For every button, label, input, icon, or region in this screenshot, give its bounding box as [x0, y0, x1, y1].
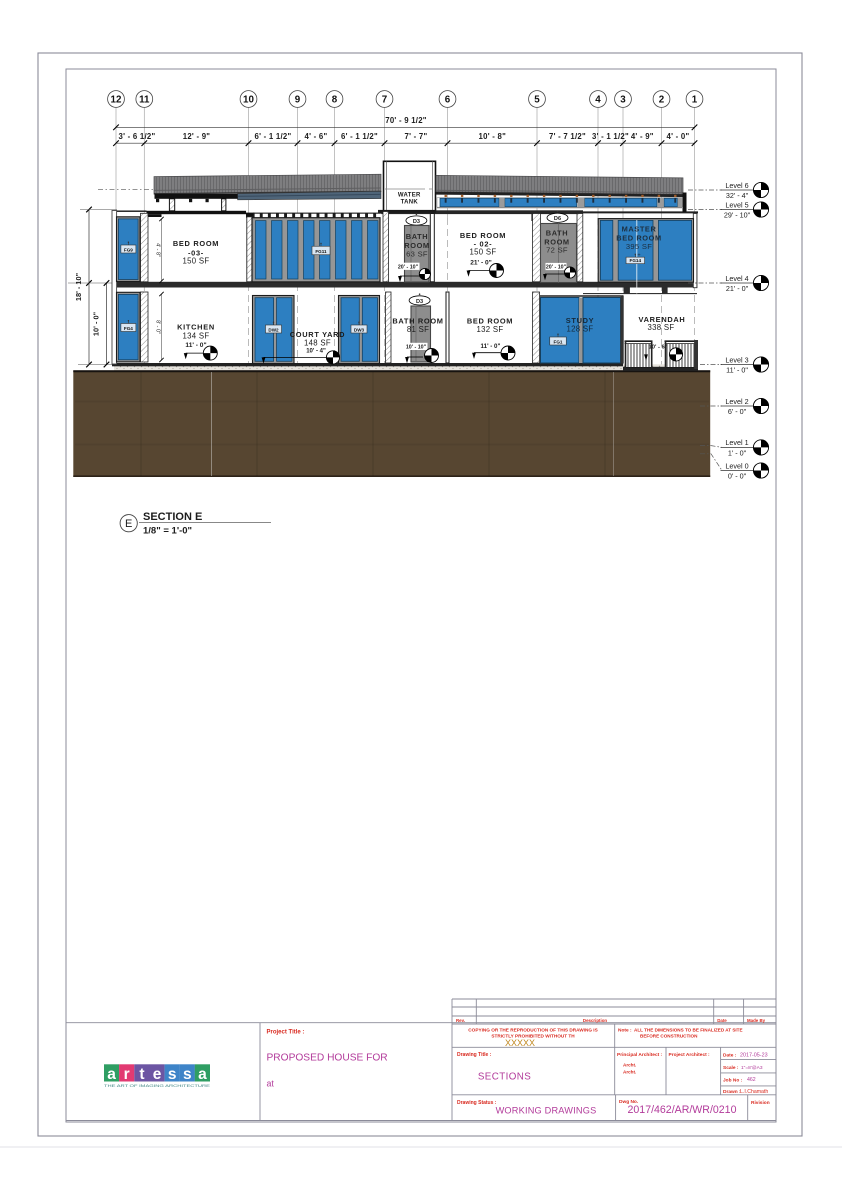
svg-text:81 SF: 81 SF — [407, 325, 429, 334]
svg-text:Note :: Note : — [618, 1027, 632, 1033]
svg-text:8' - 0": 8' - 0" — [155, 320, 161, 334]
svg-text:11: 11 — [139, 94, 150, 105]
svg-text:Drawing Title :: Drawing Title : — [457, 1052, 492, 1058]
svg-text:a: a — [107, 1066, 116, 1083]
svg-text:11' - 0": 11' - 0" — [185, 342, 206, 349]
svg-text:7' - 7 1/2": 7' - 7 1/2" — [549, 132, 586, 141]
svg-text:a: a — [198, 1066, 207, 1083]
svg-text:BATH: BATH — [406, 232, 428, 241]
svg-text:4' - 8": 4' - 8" — [155, 243, 161, 257]
svg-text:11' - 0": 11' - 0" — [726, 365, 748, 374]
svg-text:1/8" = 1'-0": 1/8" = 1'-0" — [143, 525, 192, 536]
svg-text:Level 6: Level 6 — [725, 181, 748, 190]
svg-text:12: 12 — [111, 94, 122, 105]
svg-text:Archt.: Archt. — [623, 1063, 636, 1068]
svg-text:Level 3: Level 3 — [725, 355, 748, 364]
svg-text:WORKING DRAWINGS: WORKING DRAWINGS — [496, 1106, 597, 1116]
svg-text:338 SF: 338 SF — [648, 323, 675, 332]
svg-text:7: 7 — [382, 94, 388, 105]
svg-text:SECTION E: SECTION E — [143, 511, 202, 523]
svg-text:TANK: TANK — [401, 199, 419, 205]
svg-text:2017/462/AR/WR/0210: 2017/462/AR/WR/0210 — [628, 1104, 737, 1116]
svg-text:132 SF: 132 SF — [477, 325, 504, 334]
svg-text:5: 5 — [534, 94, 540, 105]
svg-text:150 SF: 150 SF — [470, 248, 497, 257]
svg-text:KITCHEN: KITCHEN — [177, 323, 215, 332]
svg-text:150 SF: 150 SF — [183, 256, 210, 265]
svg-text:XXXXX: XXXXX — [505, 1038, 535, 1048]
svg-text:6' - 1 1/2": 6' - 1 1/2" — [341, 132, 378, 141]
svg-text:10' - 8": 10' - 8" — [479, 132, 507, 141]
svg-text:21' - 0": 21' - 0" — [470, 260, 492, 267]
svg-text:20' - 10": 20' - 10" — [546, 265, 567, 271]
svg-text:18' - 10": 18' - 10" — [74, 272, 83, 301]
svg-text:E: E — [125, 518, 132, 530]
svg-text:20' - 10": 20' - 10" — [398, 265, 419, 271]
svg-text:MASTER: MASTER — [622, 225, 657, 234]
svg-text:BEFORE CONSTRUCTION: BEFORE CONSTRUCTION — [640, 1034, 698, 1039]
svg-text:10' - 0": 10' - 0" — [92, 311, 101, 336]
svg-text:4: 4 — [595, 94, 601, 105]
svg-text:e: e — [153, 1066, 162, 1083]
svg-text:Project Title :: Project Title : — [267, 1029, 305, 1035]
svg-text:Date :: Date : — [723, 1052, 737, 1058]
svg-text:s: s — [168, 1066, 177, 1083]
svg-text:Project Architect :: Project Architect : — [669, 1052, 711, 1058]
svg-text:BATH: BATH — [546, 229, 568, 238]
svg-text:D6: D6 — [554, 216, 561, 222]
svg-text:12' - 9": 12' - 9" — [183, 132, 211, 141]
svg-text:6: 6 — [445, 94, 451, 105]
svg-text:SECTIONS: SECTIONS — [478, 1072, 531, 1083]
svg-text:4' - 6": 4' - 6" — [305, 132, 328, 141]
svg-text:Date: Date — [717, 1018, 727, 1023]
svg-text:32' - 4": 32' - 4" — [726, 191, 749, 200]
svg-text:2: 2 — [659, 94, 665, 105]
svg-text:10' - 6": 10' - 6" — [649, 345, 668, 351]
svg-text:at: at — [267, 1078, 275, 1088]
svg-text:s: s — [183, 1066, 192, 1083]
svg-text:Archt.: Archt. — [623, 1070, 636, 1075]
svg-text:r: r — [124, 1066, 130, 1083]
svg-text:ALL THE DIMENSIONS TO BE FINAL: ALL THE DIMENSIONS TO BE FINALIZED AT SI… — [634, 1027, 743, 1032]
svg-text:Principal Architect :: Principal Architect : — [617, 1052, 663, 1058]
svg-text:8: 8 — [332, 94, 338, 105]
svg-text:148 SF: 148 SF — [304, 338, 331, 347]
svg-text:1"=8'@A3: 1"=8'@A3 — [741, 1065, 763, 1071]
svg-text:Level 0: Level 0 — [725, 461, 748, 470]
svg-text:FG11: FG11 — [315, 249, 327, 254]
svg-text:D3: D3 — [416, 299, 423, 305]
svg-text:11' - 0": 11' - 0" — [481, 343, 501, 350]
svg-text:Level 1: Level 1 — [725, 438, 748, 447]
svg-text:4' - 9": 4' - 9" — [631, 132, 654, 141]
svg-text:L.I.Chamath: L.I.Chamath — [740, 1089, 768, 1095]
svg-text:FG4: FG4 — [124, 326, 133, 331]
svg-text:Description: Description — [583, 1018, 607, 1023]
svg-text:462: 462 — [747, 1077, 756, 1083]
svg-text:COPYING OR THE REPRODUCTION OF: COPYING OR THE REPRODUCTION OF THIS DRAW… — [468, 1027, 597, 1032]
svg-text:t: t — [139, 1066, 144, 1083]
svg-text:DW3: DW3 — [354, 327, 365, 332]
svg-text:9: 9 — [295, 94, 301, 105]
svg-text:Rivision: Rivision — [751, 1100, 770, 1106]
svg-text:6' - 0": 6' - 0" — [728, 407, 747, 416]
svg-text:29' - 10": 29' - 10" — [724, 210, 751, 219]
svg-text:Job No :: Job No : — [723, 1078, 743, 1084]
svg-text:Level 5: Level 5 — [725, 200, 748, 209]
svg-text:3' - 1 1/2": 3' - 1 1/2" — [592, 132, 629, 141]
svg-text:10' - 10": 10' - 10" — [406, 345, 427, 351]
svg-text:395 SF: 395 SF — [626, 242, 652, 251]
svg-text:7' - 7": 7' - 7" — [405, 132, 428, 141]
svg-text:10: 10 — [243, 94, 254, 105]
svg-text:10' - 4": 10' - 4" — [306, 348, 326, 354]
svg-text:WATER: WATER — [398, 193, 421, 199]
svg-text:63 SF: 63 SF — [406, 249, 428, 258]
svg-text:Made By: Made By — [747, 1018, 766, 1023]
svg-text:1' - 0": 1' - 0" — [728, 448, 747, 457]
svg-text:0' - 0": 0' - 0" — [728, 471, 747, 480]
svg-text:6' - 1 1/2": 6' - 1 1/2" — [255, 132, 292, 141]
svg-text:PROPOSED HOUSE FOR: PROPOSED HOUSE FOR — [267, 1052, 388, 1063]
svg-text:Level 2: Level 2 — [725, 397, 748, 406]
svg-text:Rev.: Rev. — [456, 1018, 465, 1023]
svg-text:Level 4: Level 4 — [725, 274, 748, 283]
svg-text:128 SF: 128 SF — [567, 325, 594, 334]
svg-text:D3: D3 — [413, 219, 420, 225]
svg-text:Drawing Status :: Drawing Status : — [457, 1100, 497, 1106]
svg-text:DW2: DW2 — [268, 327, 279, 332]
svg-text:70' - 9 1/2": 70' - 9 1/2" — [385, 116, 427, 125]
svg-text:FG1: FG1 — [554, 339, 563, 344]
svg-text:BED ROOM: BED ROOM — [173, 239, 219, 248]
svg-text:3: 3 — [620, 94, 626, 105]
svg-text:4' - 0": 4' - 0" — [667, 132, 690, 141]
svg-text:FG14: FG14 — [630, 258, 642, 263]
svg-text:Scale :: Scale : — [723, 1065, 739, 1071]
svg-text:Drawn :: Drawn : — [723, 1089, 741, 1095]
svg-text:72 SF: 72 SF — [546, 246, 568, 255]
svg-text:2017-05-23: 2017-05-23 — [740, 1053, 768, 1059]
svg-text:FG9: FG9 — [124, 247, 133, 252]
svg-text:21' - 0": 21' - 0" — [726, 284, 749, 293]
svg-text:134 SF: 134 SF — [183, 332, 210, 341]
svg-text:1: 1 — [692, 94, 698, 105]
svg-text:THE ART OF IMAGING ARCHITECTUR: THE ART OF IMAGING ARCHITECTURE — [104, 1083, 211, 1088]
svg-text:3' - 6 1/2": 3' - 6 1/2" — [119, 132, 156, 141]
